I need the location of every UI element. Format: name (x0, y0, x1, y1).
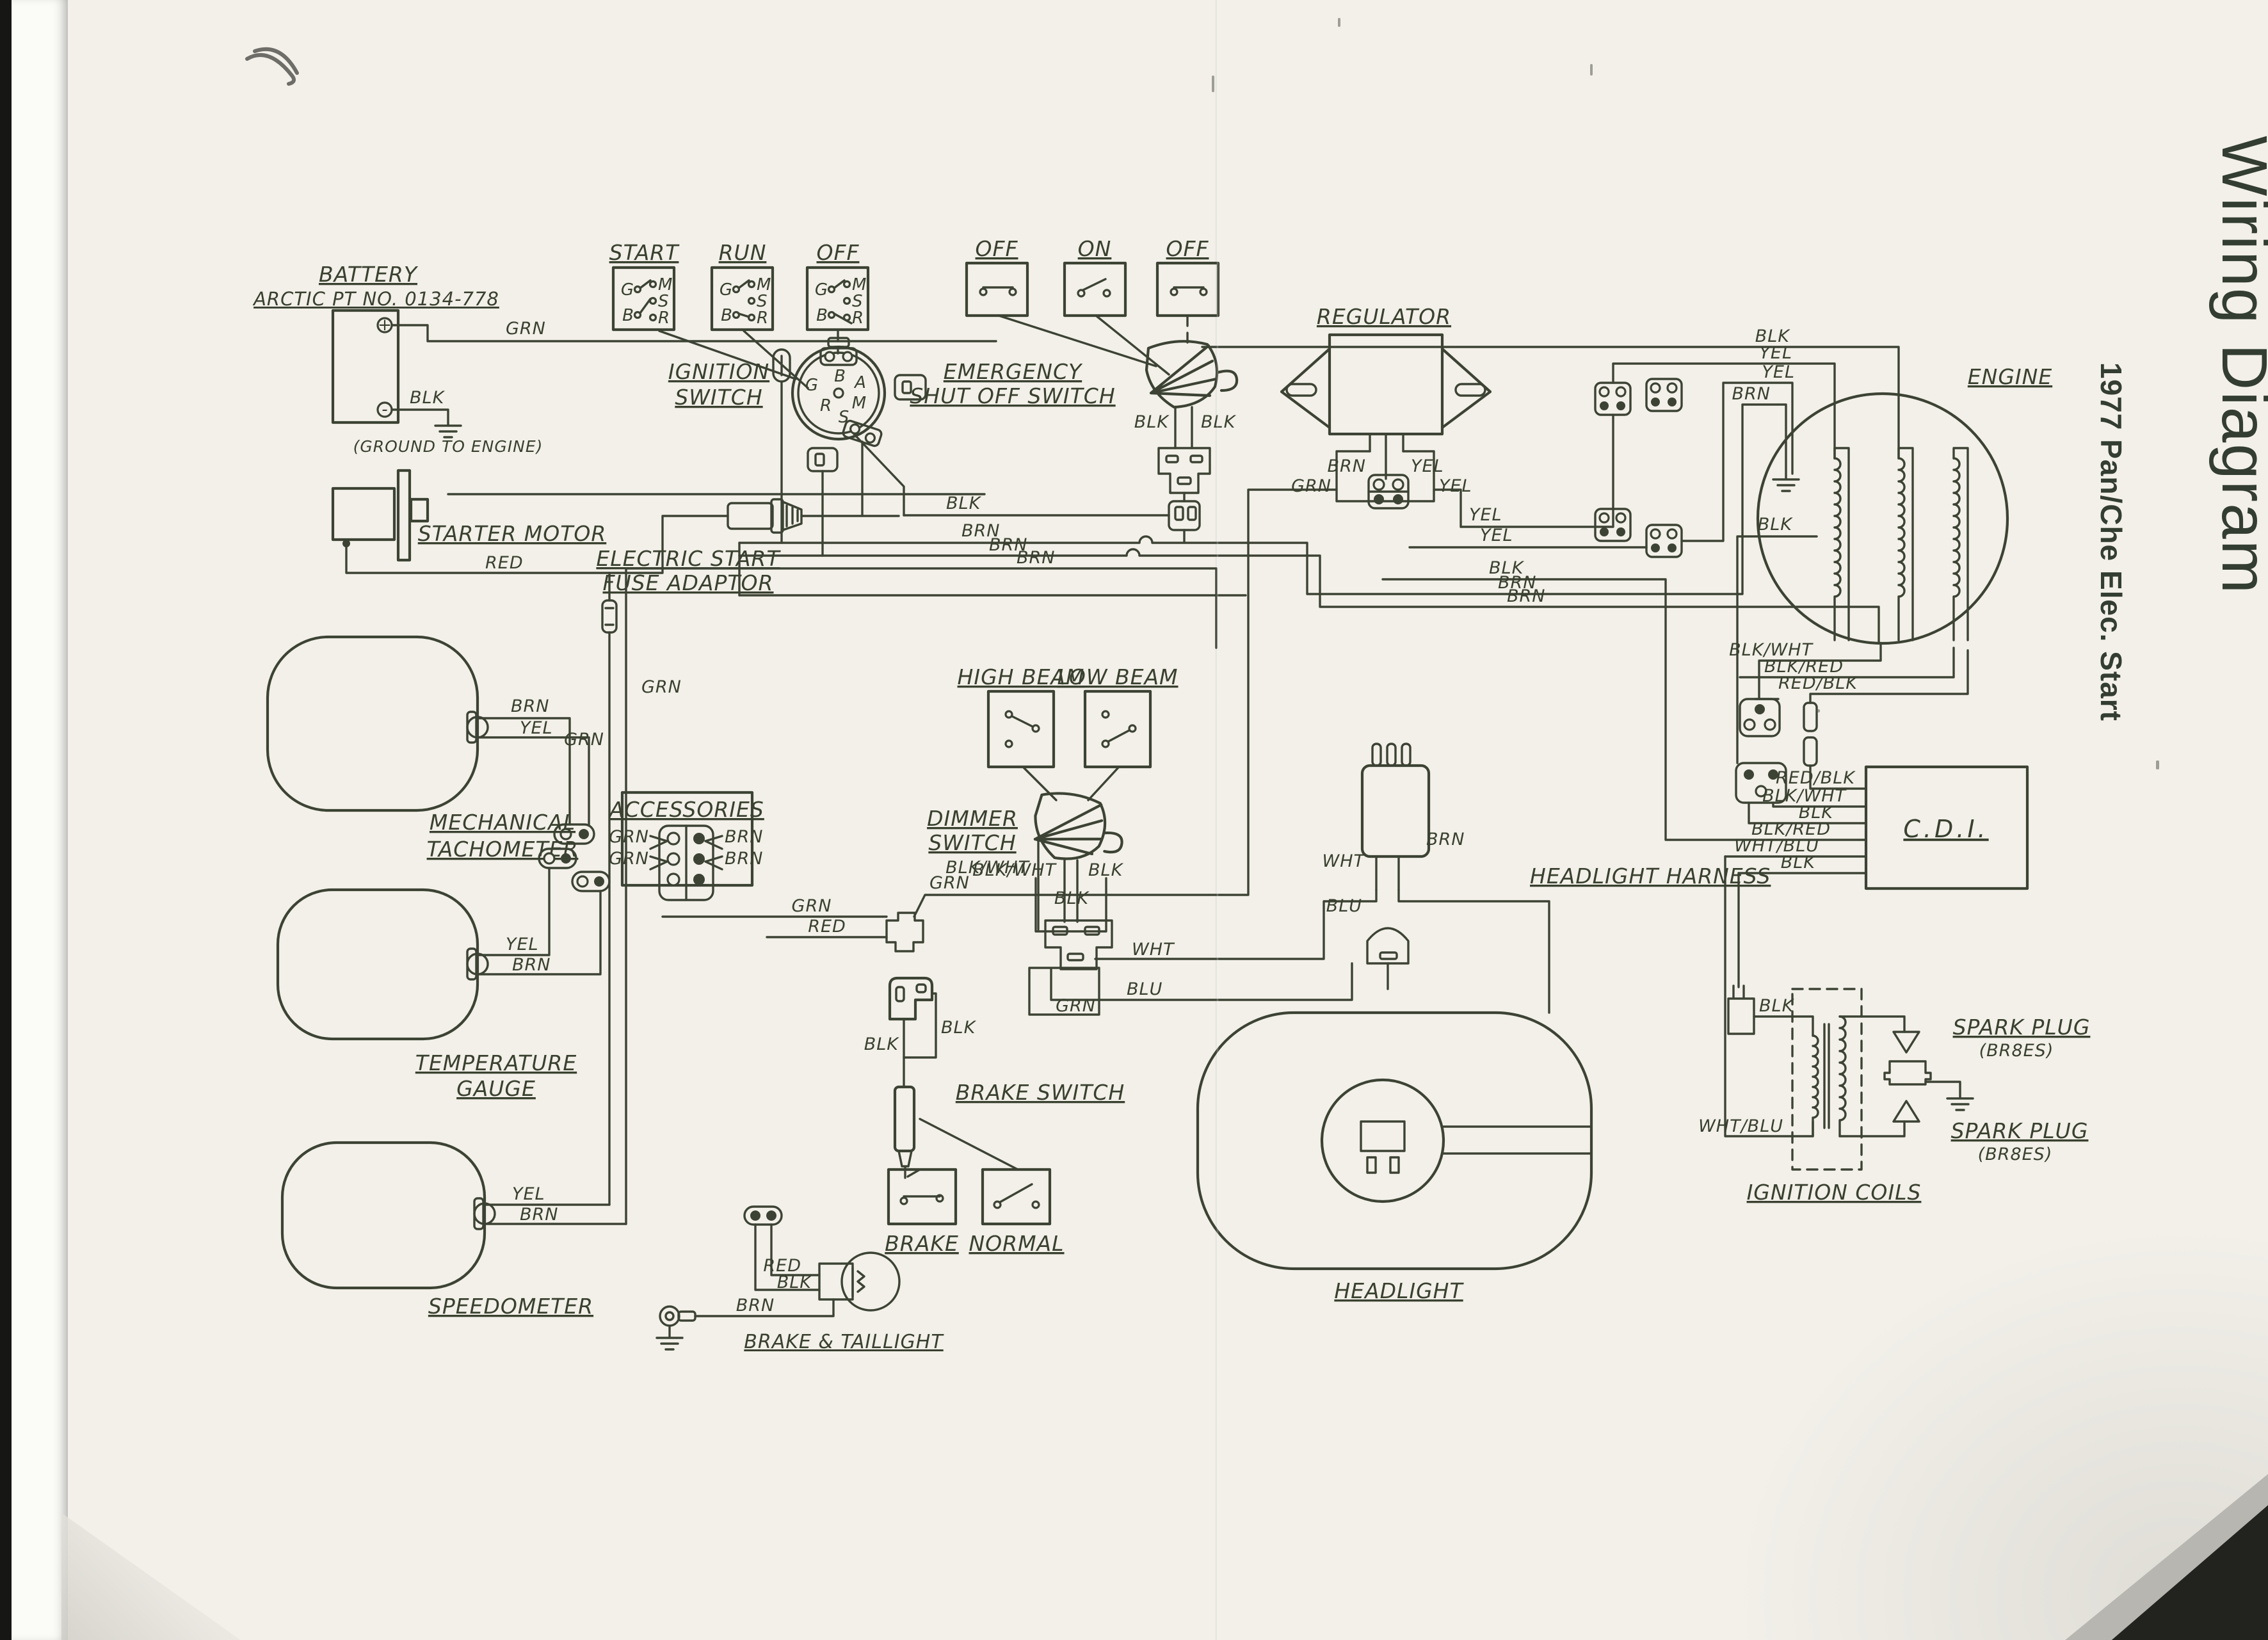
scan-edge-dark (0, 0, 12, 1640)
emergency-on-label: ON (1078, 236, 1112, 261)
headlight-harness-component (1362, 744, 1549, 1013)
wire-label-brn: BRN (725, 849, 763, 869)
cdi-label: C.D.I. (1903, 815, 1988, 843)
wire-label-brn: BRN (725, 827, 763, 847)
key-position-start-label: START (609, 240, 680, 265)
spark-plug-2-label: SPARK PLUG (1951, 1118, 2089, 1143)
wire-label-blk: BLK (1758, 515, 1794, 535)
speedometer-component (282, 1143, 626, 1288)
brake-taillight-label: BRAKE & TAILLIGHT (744, 1331, 944, 1353)
ignition-terminal-m: M (852, 394, 866, 413)
tachometer-label-1: MECHANICAL (430, 810, 575, 835)
wire-label-brn: BRN (1507, 586, 1545, 606)
headlight-label: HEADLIGHT (1334, 1278, 1464, 1303)
emergency-label-1: EMERGENCY (944, 359, 1083, 384)
wire-label-yel: YEL (1759, 343, 1792, 363)
normal-position-label: NORMAL (969, 1231, 1064, 1256)
temp-gauge-label-2: GAUGE (456, 1076, 536, 1101)
wire-label-red: RED (485, 553, 524, 573)
wire-label-grn: GRN (641, 677, 682, 697)
headlight-component (1198, 1013, 1591, 1269)
ignition-coils-label: IGNITION COILS (1747, 1180, 1922, 1205)
wire-label-blk: BLK (1088, 860, 1124, 880)
regulator-label: REGULATOR (1317, 304, 1451, 329)
terminal-b: B (721, 306, 732, 325)
wire-label-yel: YEL (1480, 526, 1513, 545)
wire-label-grn: GRN (506, 319, 546, 339)
wire-label-brn: BRN (1732, 384, 1771, 404)
wire-label-blk: BLK (1759, 996, 1795, 1016)
brake-position-label: BRAKE (885, 1231, 959, 1256)
ignition-terminal-s: S (839, 408, 849, 427)
scan-speck (1590, 64, 1593, 76)
wire-label-wht: WHT (1323, 851, 1366, 871)
spark-plug-2-type: (BR8ES) (1978, 1145, 2053, 1164)
ignition-switch-label-2: SWITCH (675, 385, 762, 410)
key-position-run-label: RUN (719, 240, 767, 265)
terminal-g: G (720, 280, 732, 300)
wire-label-brn: BRN (736, 1296, 775, 1315)
ignition-terminal-r: R (820, 396, 832, 415)
wire-label-yel: YEL (1469, 505, 1502, 525)
cdi-wiring (1725, 645, 2027, 1136)
scan-speck (1338, 18, 1340, 27)
scan-speck (1212, 76, 1214, 92)
terminal-r: R (658, 309, 670, 328)
ignition-switch-label-1: IGNITION (668, 359, 769, 384)
harness-bus-wires (626, 383, 1879, 1224)
wire-label-brn: BRN (512, 955, 551, 975)
wire-label-grn: GRN (564, 730, 604, 750)
ignition-terminal-b: B (834, 367, 846, 386)
wire-label-yel: YEL (506, 935, 539, 954)
wire-label-blk: BLK (1134, 412, 1170, 432)
spark-plug-1-label: SPARK PLUG (1953, 1015, 2091, 1040)
fuse-adaptor-label-1: ELECTRIC START (596, 546, 781, 571)
wire-label-blk: BLK (1054, 888, 1090, 908)
wire-label-brn: BRN (1426, 830, 1465, 849)
terminal-g: G (815, 280, 828, 300)
battery-minus-terminal: - (382, 400, 387, 419)
paper-crease (1215, 0, 1219, 1640)
scan-speck (1817, 709, 1820, 712)
battery-part-number: ARCTIC PT NO. 0134-778 (252, 288, 499, 310)
wire-label-yel: YEL (1411, 456, 1444, 476)
wire-label-wht-blu: WHT/BLU (1698, 1116, 1783, 1136)
pencil-mark (247, 49, 297, 84)
terminal-b: B (816, 306, 828, 325)
dimmer-label-1: DIMMER (927, 806, 1018, 831)
ignition-terminal-a: A (853, 373, 866, 392)
wire-label-yel: YEL (1762, 362, 1795, 382)
wire-label-blk: BLK (1781, 853, 1817, 872)
wire-label-grn: GRN (609, 849, 649, 869)
emergency-off1-label: OFF (976, 236, 1018, 261)
wire-label-blk: BLK (777, 1273, 813, 1292)
engine-label: ENGINE (1968, 364, 2052, 389)
wire-label-blk: BLK (946, 494, 982, 513)
temp-gauge-component (278, 849, 609, 1039)
accessories-label: ACCESSORIES (608, 797, 764, 822)
terminal-g: G (621, 280, 634, 300)
wire-label-brn: BRN (520, 1205, 558, 1225)
starter-motor-label: STARTER MOTOR (418, 521, 607, 546)
corner-fold-bottom-right (2057, 1467, 2268, 1640)
wire-label-yel: YEL (520, 718, 553, 738)
ignition-terminal-g: G (805, 376, 818, 395)
battery-ground-note: (GROUND TO ENGINE) (353, 437, 543, 456)
terminal-b: B (622, 306, 634, 325)
wire-label-yel: YEL (1439, 476, 1472, 496)
key-position-off-label: OFF (817, 240, 860, 265)
battery-label: BATTERY (319, 262, 419, 287)
brake-switch-label: BRAKE SWITCH (956, 1080, 1125, 1105)
scan-edge-light (12, 0, 68, 1640)
wire-label-red-blk: RED/BLK (1776, 768, 1856, 788)
page-subtitle: 1977 Pan/Che Elec. Start (2095, 362, 2128, 721)
wire-label-blk: BLK (864, 1034, 900, 1054)
spark-plug-1-type: (BR8ES) (1979, 1041, 2054, 1061)
wire-label-brn: BRN (511, 696, 549, 716)
wire-label-grn: GRN (792, 896, 832, 916)
fuse-adaptor-label-2: FUSE ADAPTOR (603, 570, 774, 595)
wire-label-blu: BLU (1326, 896, 1362, 916)
speedometer-label: SPEEDOMETER (428, 1294, 593, 1319)
wire-label-yel: YEL (512, 1184, 545, 1204)
temp-gauge-label-1: TEMPERATURE (415, 1050, 577, 1075)
emergency-label-2: SHUT OFF SWITCH (910, 383, 1115, 408)
wire-label-blk: BLK (941, 1018, 977, 1038)
scanned-wiring-diagram-page: BATTERY ARCTIC PT NO. 0134-778 + - GRN B… (0, 0, 2268, 1640)
terminal-r: R (757, 309, 768, 328)
wire-label-brn: BRN (1328, 456, 1366, 476)
wire-label-blk: BLK (410, 388, 446, 408)
scan-speck (2156, 760, 2159, 769)
wire-label-blu: BLU (1127, 979, 1162, 999)
wire-label-grn: GRN (1056, 996, 1096, 1016)
headlight-harness-label: HEADLIGHT HARNESS (1530, 864, 1771, 888)
wire-label-brn: BRN (1017, 548, 1055, 568)
battery-plus-terminal: + (378, 316, 392, 335)
low-beam-label: LOW BEAM (1057, 664, 1178, 689)
emergency-off2-label: OFF (1166, 236, 1209, 261)
wire-label-grn: GRN (1291, 476, 1331, 496)
wire-label-red: RED (808, 917, 846, 937)
fold-shadow (2057, 1467, 2268, 1640)
page-title: Wiring Diagram (2208, 136, 2268, 595)
wire-label-red-blk: RED/BLK (1778, 673, 1858, 693)
wire-label-grn: GRN (609, 827, 649, 847)
wire-label-wht: WHT (1132, 940, 1175, 960)
dimmer-label-2: SWITCH (928, 830, 1016, 855)
dimmer-switch-component (988, 691, 1376, 1015)
ignition-switch-component (773, 338, 926, 471)
engine-component (1737, 394, 2007, 763)
wiring-diagram-canvas: BATTERY ARCTIC PT NO. 0134-778 + - GRN B… (0, 0, 2268, 1640)
wire-label-blk-wht: BLK/WHT (972, 860, 1057, 880)
terminal-r: R (852, 309, 864, 328)
